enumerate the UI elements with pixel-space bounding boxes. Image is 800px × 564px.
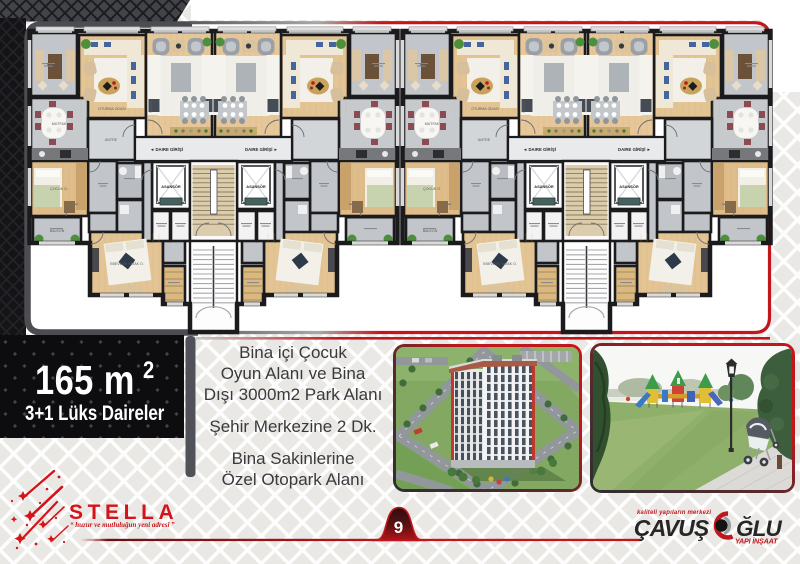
svg-text:BALKON: BALKON bbox=[47, 63, 62, 67]
svg-text:YAPI İNŞAAT: YAPI İNŞAAT bbox=[735, 537, 778, 546]
svg-text:9: 9 bbox=[394, 518, 403, 537]
svg-text:Dışı 3000m2 Park Alanı: Dışı 3000m2 Park Alanı bbox=[204, 385, 383, 404]
svg-text:Bina Sakinlerine: Bina Sakinlerine bbox=[232, 449, 355, 468]
svg-text:DAIRE GİRİŞİ ►: DAIRE GİRİŞİ ► bbox=[245, 147, 278, 152]
svg-text:MUTFAK: MUTFAK bbox=[52, 122, 67, 126]
svg-text:ASANSÖR: ASANSÖR bbox=[161, 184, 181, 189]
svg-text:2: 2 bbox=[143, 356, 154, 383]
svg-text:Bina içi Çocuk: Bina içi Çocuk bbox=[239, 343, 347, 362]
svg-text:“ huzur ve mutluluğun yeni adr: “ huzur ve mutluluğun yeni adresi ” bbox=[70, 521, 175, 529]
svg-text:ÇAVUŞ: ÇAVUŞ bbox=[634, 515, 710, 541]
svg-text:EBEVEYN YATAK O.: EBEVEYN YATAK O. bbox=[110, 262, 144, 266]
svg-text:Oyun Alanı ve Bina: Oyun Alanı ve Bina bbox=[221, 364, 366, 383]
svg-text:ANTRE: ANTRE bbox=[105, 138, 118, 142]
svg-text:165 m: 165 m bbox=[35, 358, 135, 403]
svg-text:SALON: SALON bbox=[149, 101, 153, 113]
svg-text:BALKON: BALKON bbox=[50, 229, 65, 233]
svg-text:OTURMA ODASI: OTURMA ODASI bbox=[98, 107, 126, 111]
svg-text:ASANSÖR: ASANSÖR bbox=[246, 184, 266, 189]
svg-text:Şehir Merkezine 2 Dk.: Şehir Merkezine 2 Dk. bbox=[209, 417, 376, 436]
svg-text:Özel Otopark Alanı: Özel Otopark Alanı bbox=[222, 470, 365, 489]
svg-text:◄ DAIRE GİRİŞİ: ◄ DAIRE GİRİŞİ bbox=[150, 147, 183, 152]
svg-text:ÇOCUK O.: ÇOCUK O. bbox=[50, 187, 68, 191]
svg-text:3+1 Lüks Daireler: 3+1 Lüks Daireler bbox=[25, 402, 165, 425]
